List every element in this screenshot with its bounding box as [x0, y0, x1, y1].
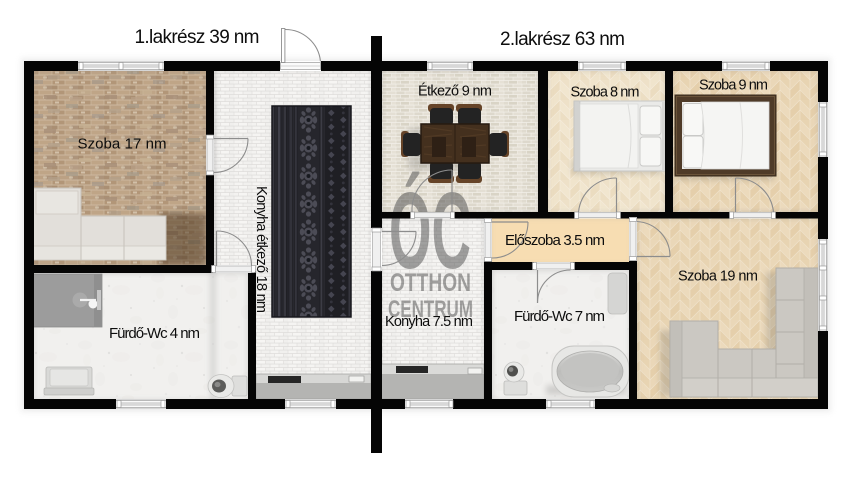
svg-text:Étkező 9 nm: Étkező 9 nm [418, 83, 492, 100]
svg-text:Konyha 7.5 nm: Konyha 7.5 nm [385, 314, 473, 330]
svg-text:Szoba 9 nm: Szoba 9 nm [699, 78, 768, 94]
svg-text:2.lakrész 63 nm: 2.lakrész 63 nm [500, 29, 625, 50]
svg-text:Előszoba 3.5 nm: Előszoba 3.5 nm [505, 232, 605, 249]
svg-text:Szoba 17 nm: Szoba 17 nm [78, 136, 167, 153]
svg-text:Konyha étkező 18 nm: Konyha étkező 18 nm [253, 186, 269, 313]
svg-text:Fürdő-Wc 7 nm: Fürdő-Wc 7 nm [514, 308, 605, 325]
svg-text:Szoba 8 nm: Szoba 8 nm [571, 85, 640, 101]
svg-text:1.lakrész 39 nm: 1.lakrész 39 nm [135, 27, 260, 48]
svg-text:OTTHON: OTTHON [390, 269, 471, 297]
svg-text:Fürdő-Wc 4 nm: Fürdő-Wc 4 nm [109, 325, 200, 342]
svg-text:Szoba 19 nm: Szoba 19 nm [678, 269, 758, 285]
